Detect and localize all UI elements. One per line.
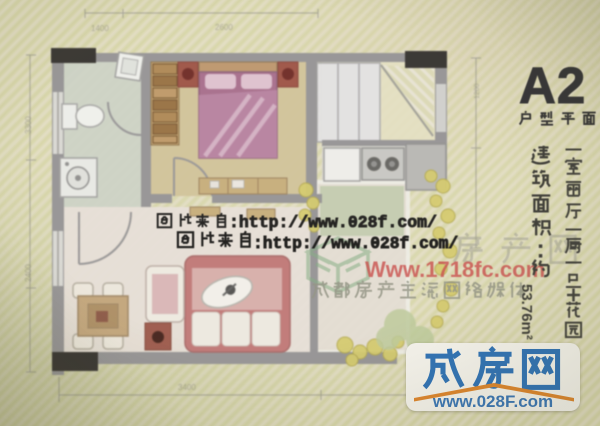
svg-text:www.028F.com: www.028F.com [432,392,553,411]
svg-text:53.76m²: 53.76m² [518,284,535,340]
